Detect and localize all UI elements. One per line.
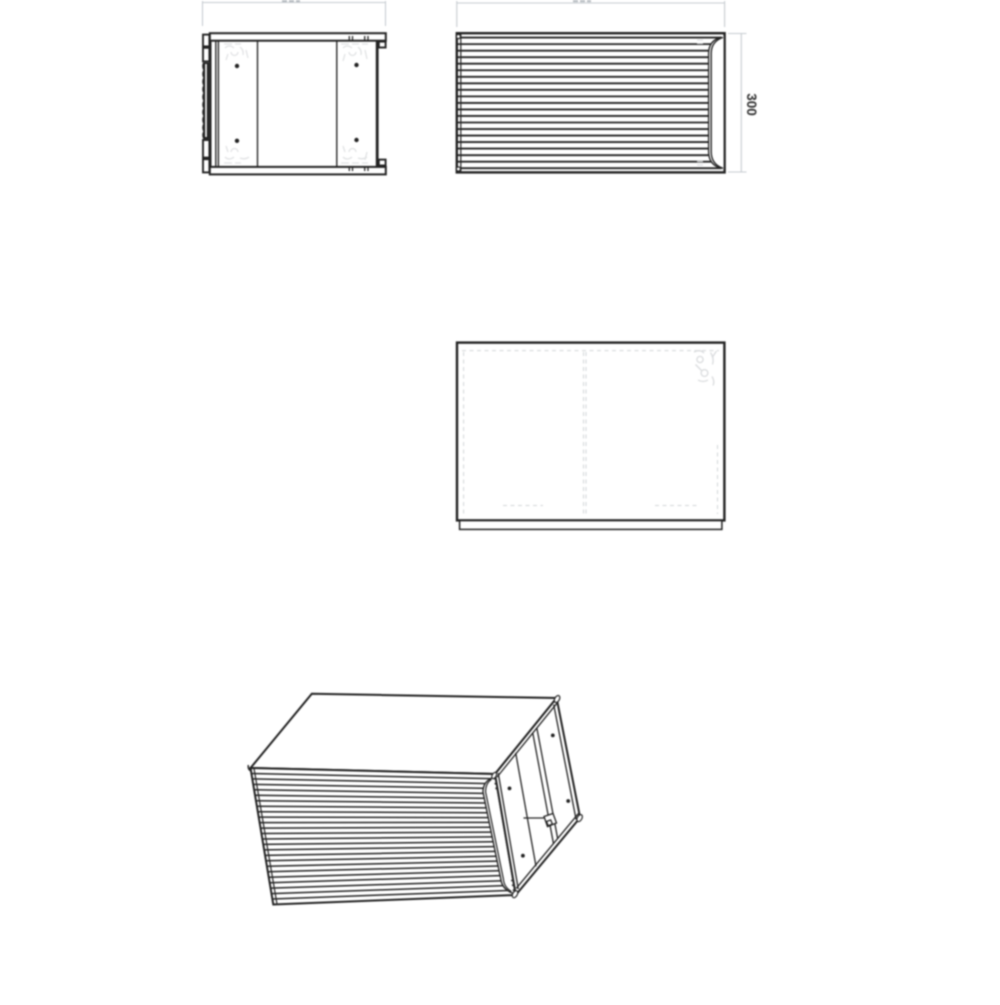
- svg-text:300: 300: [744, 93, 759, 116]
